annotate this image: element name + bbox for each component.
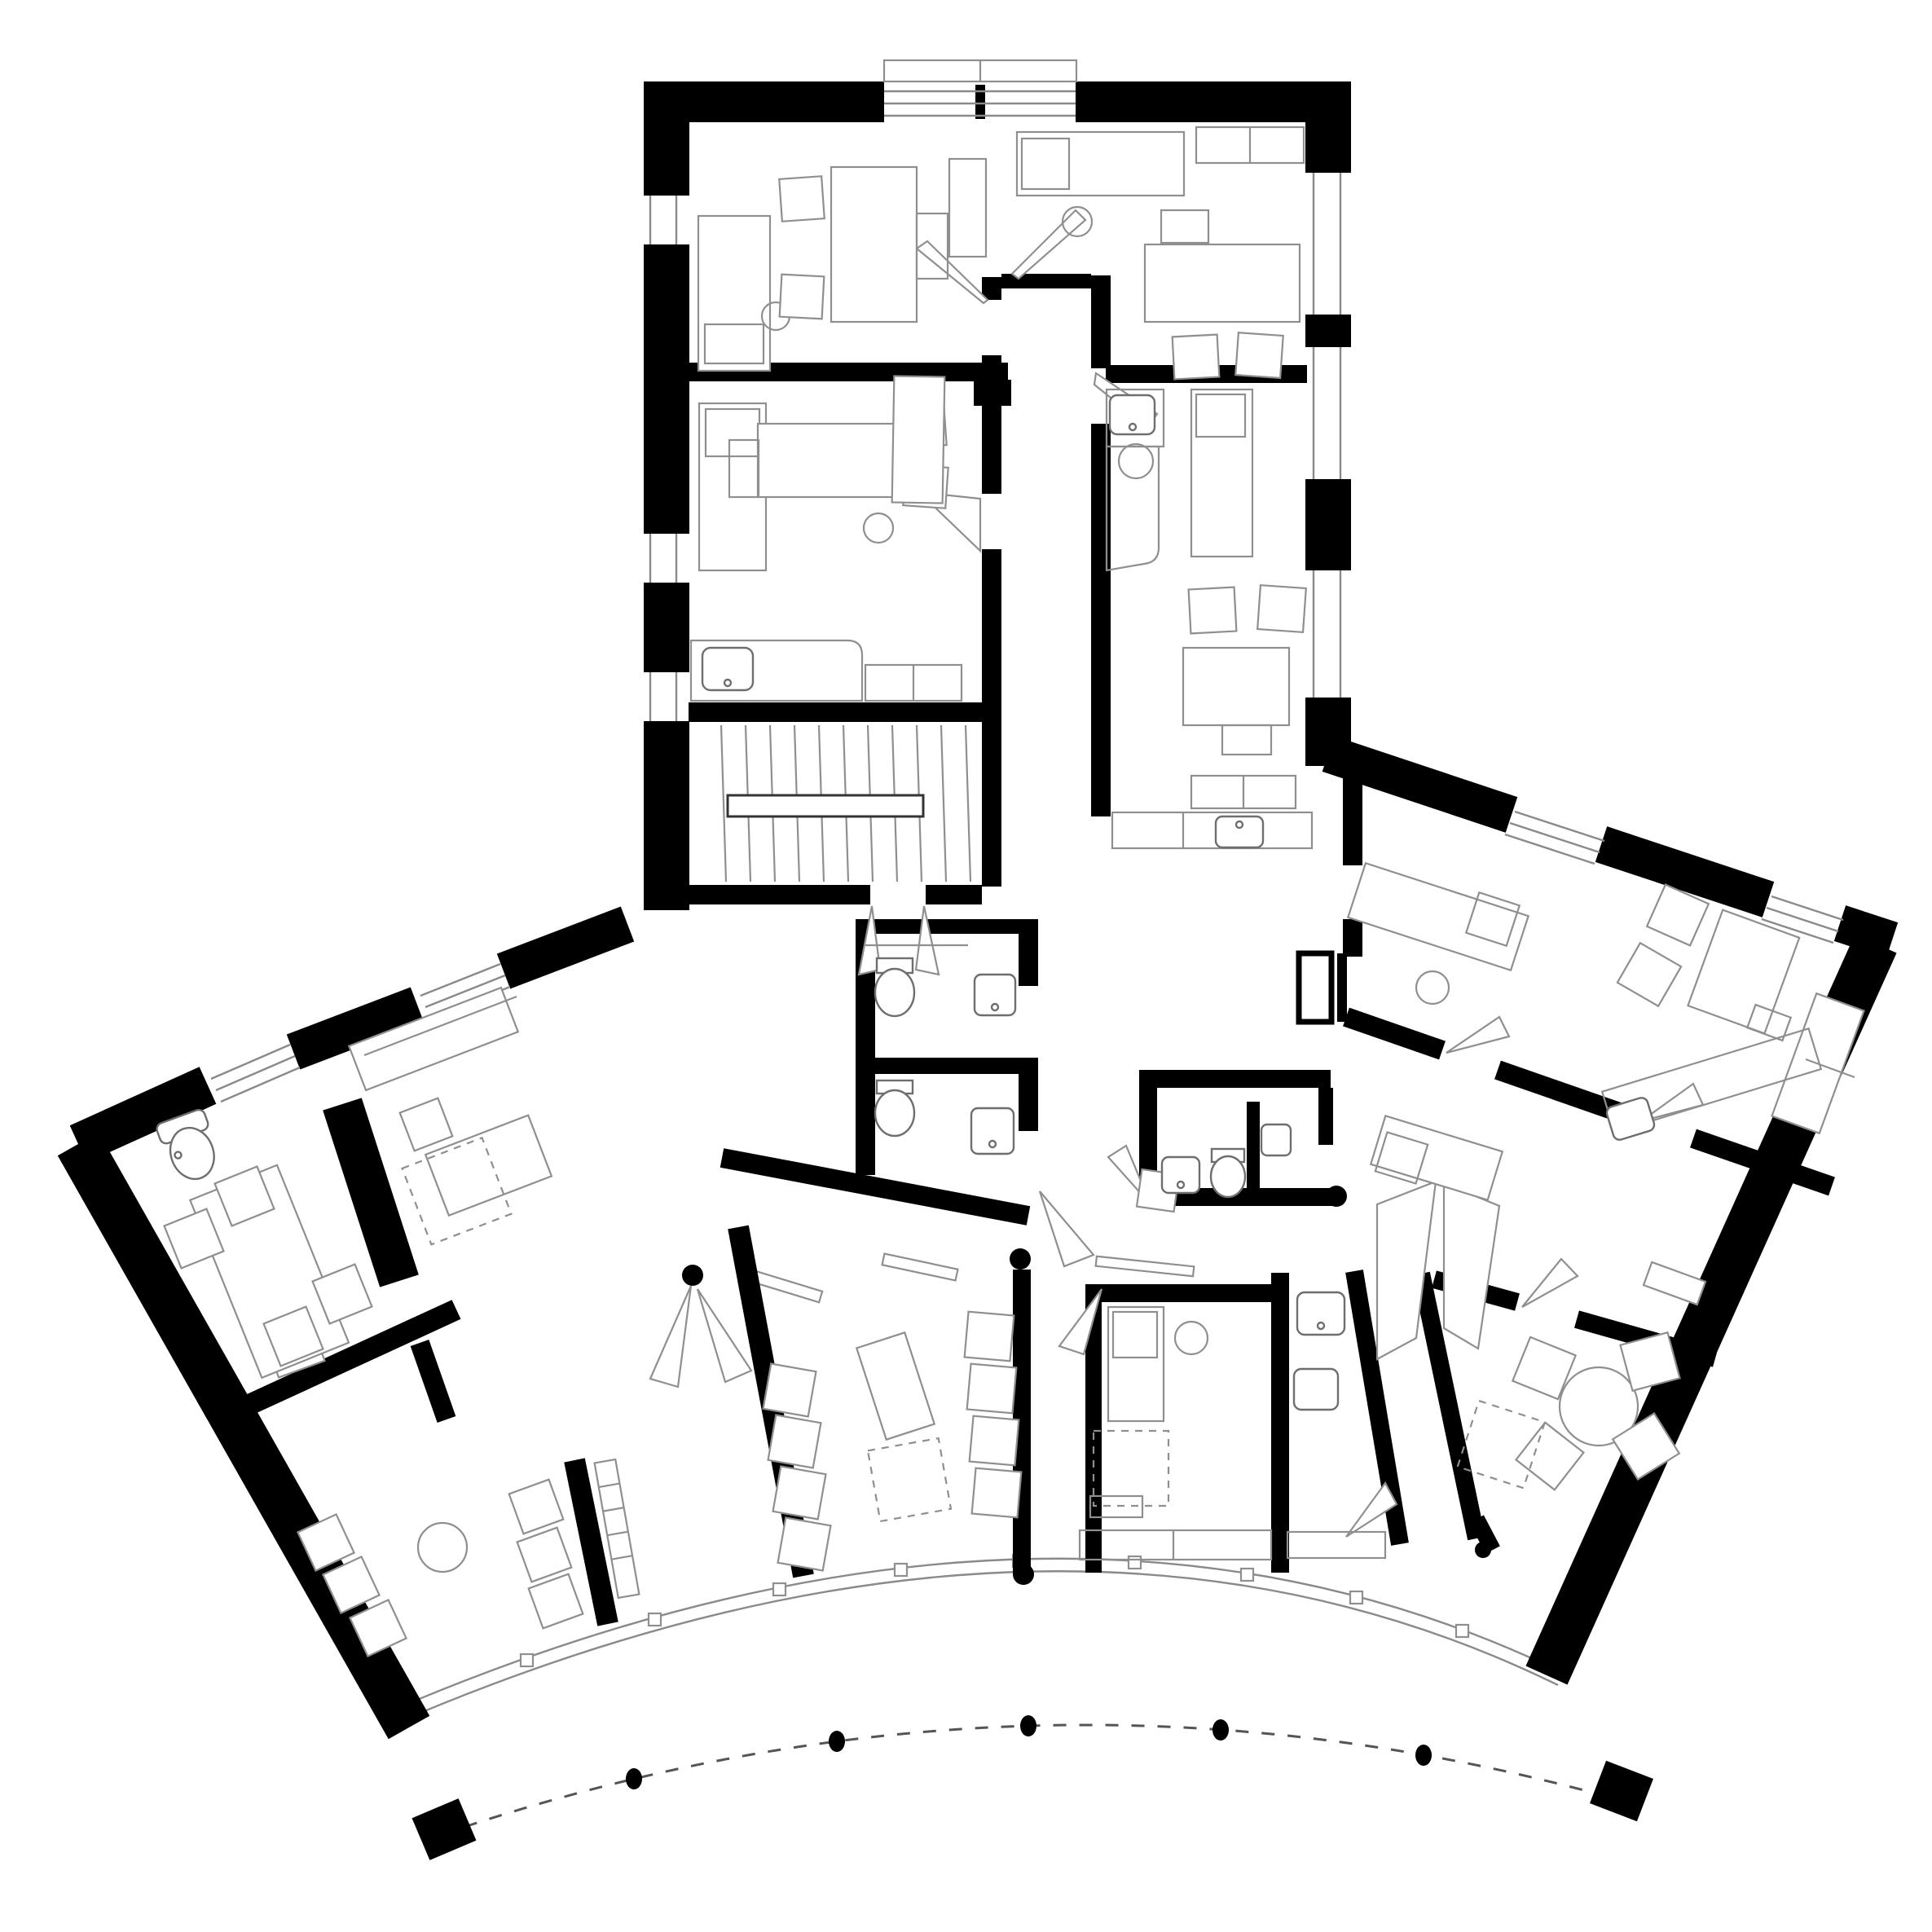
south-bedroom-furniture (1080, 1307, 1271, 1560)
corridor-walls (974, 274, 1111, 887)
curved-facade-glazing (398, 1555, 1561, 1721)
east-wall-windows (1314, 173, 1340, 698)
room3-bedroom-furniture (691, 376, 962, 701)
room4-studio-furniture (1107, 389, 1306, 808)
island-partition (1299, 953, 1347, 1022)
colonnade-arc (412, 1715, 1653, 1860)
seminar-room-furniture (764, 1312, 1022, 1571)
door-swings (650, 210, 1703, 1537)
colonnade-column-dots (626, 1715, 1432, 1789)
staircase (721, 725, 970, 882)
wc-fixtures (865, 945, 1015, 1154)
colonnade-end-block-right (1590, 1761, 1653, 1821)
stair-landing-rail (728, 795, 923, 816)
floor-plan-canvas (0, 0, 1932, 1932)
facade-mullion-ticks (521, 1555, 1468, 1666)
east-bedroom-furniture (1371, 1116, 1503, 1199)
center-bath-fixtures (1162, 1124, 1291, 1197)
colonnade-end-block-left (412, 1798, 477, 1860)
room2-office-furniture (1017, 127, 1304, 379)
floor-plan-drawing (0, 0, 1932, 1932)
